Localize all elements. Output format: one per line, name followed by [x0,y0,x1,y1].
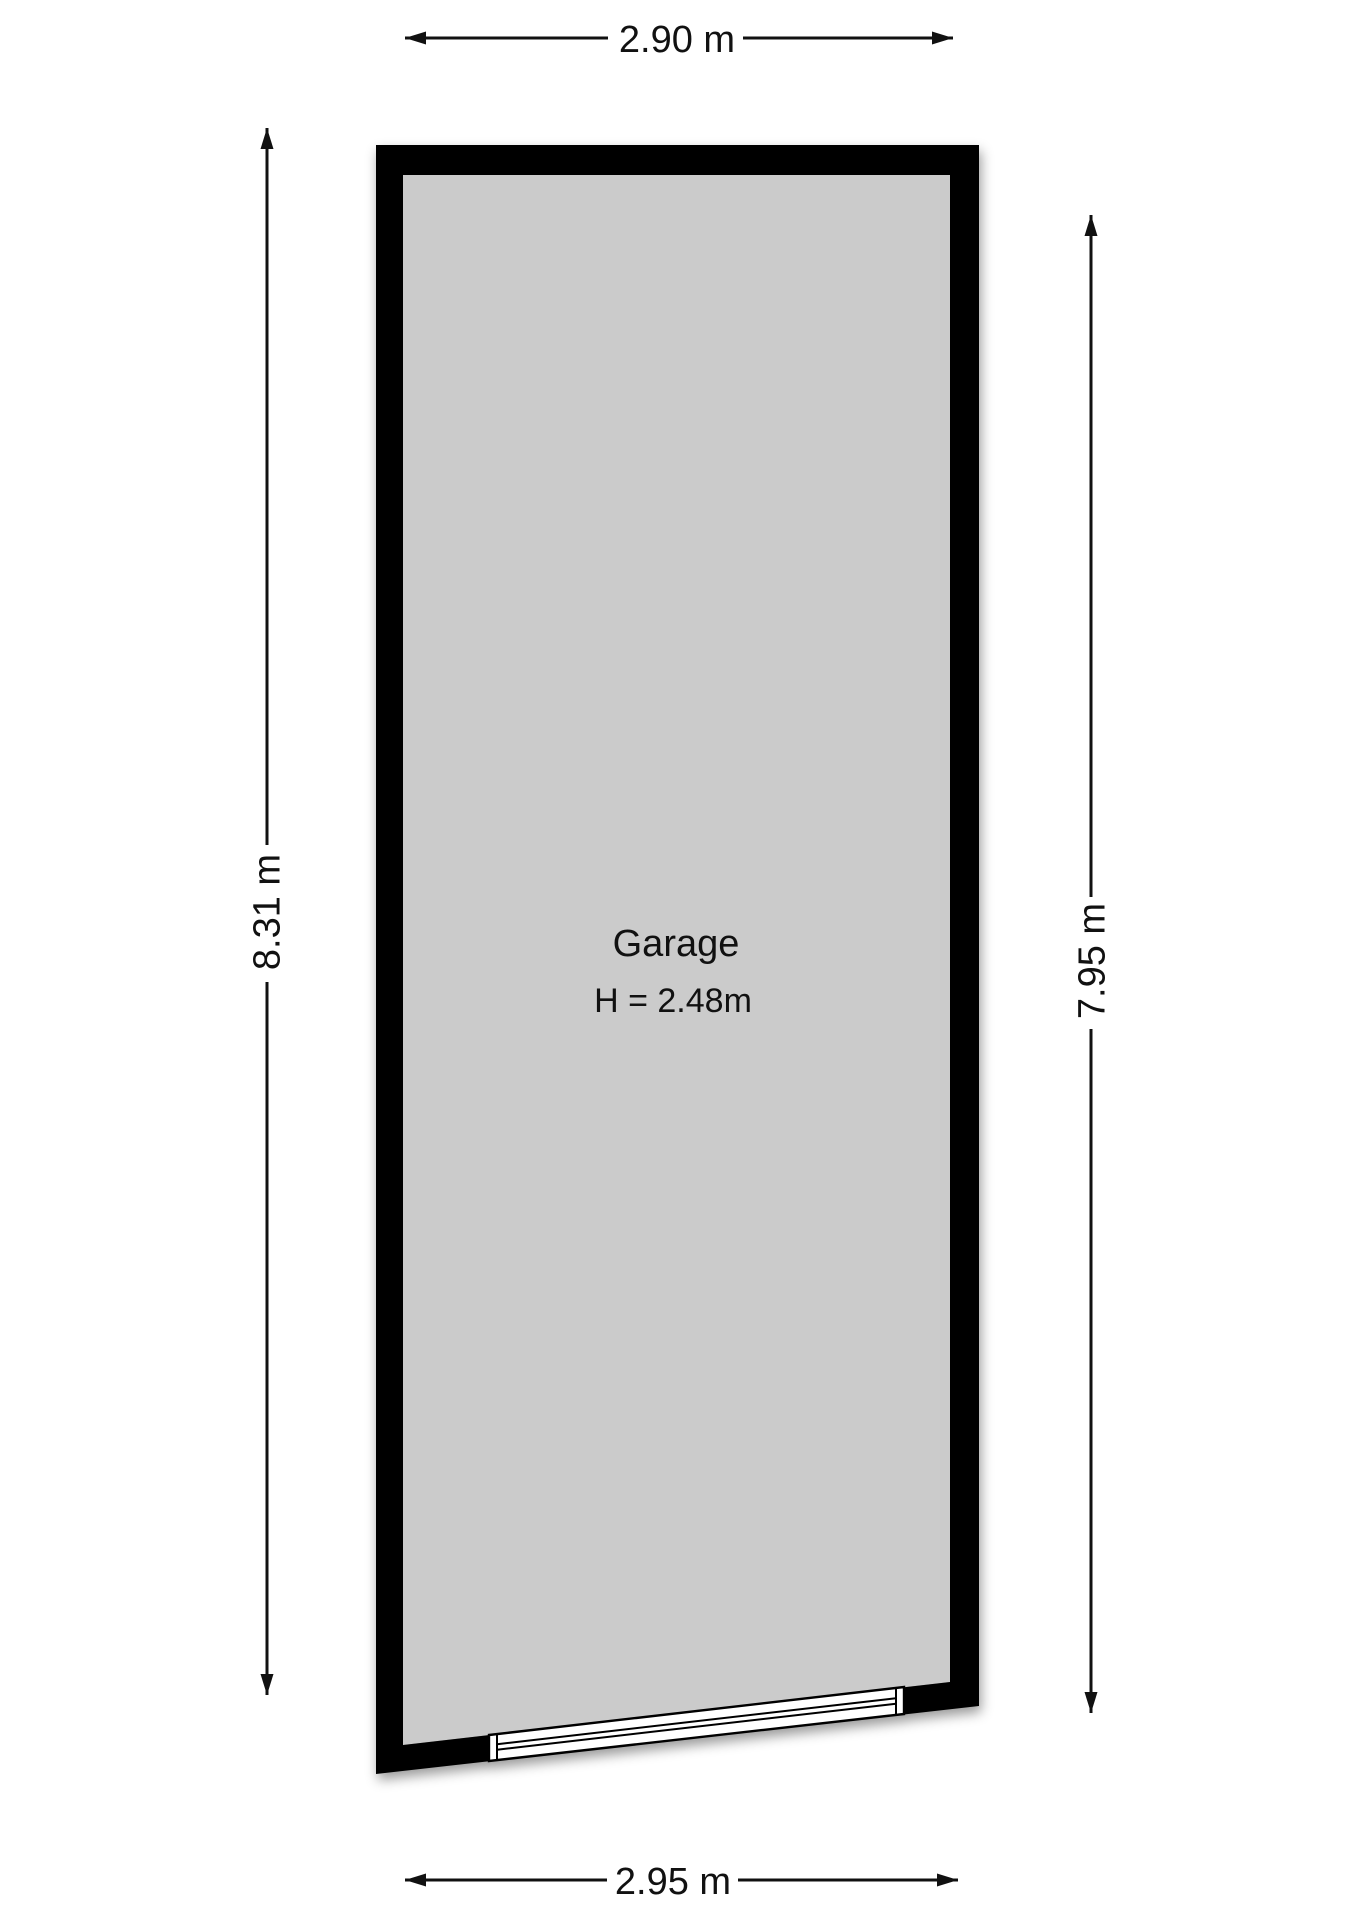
room-ceiling-height-label: H = 2.48m [594,982,752,1020]
floorplan-canvas: Garage H = 2.48m 2.90 m 8.31 m 7.95 m 2.… [0,0,1358,1920]
arrowhead-up-icon [261,128,274,149]
arrowhead-left-icon [405,32,426,45]
arrowhead-up-icon [1085,215,1098,236]
arrowhead-left-icon [405,1874,426,1887]
arrowhead-right-icon [937,1874,958,1887]
dimension-left: 8.31 m [246,128,288,1695]
dimension-left-label: 8.31 m [246,854,288,970]
dimension-bottom: 2.95 m [405,1861,958,1903]
arrowhead-down-icon [1085,1692,1098,1713]
dimension-top: 2.90 m [405,19,953,61]
dimension-bottom-label: 2.95 m [615,1861,731,1903]
arrowhead-right-icon [932,32,953,45]
room-name-label: Garage [613,923,740,965]
dimension-top-label: 2.90 m [619,19,735,61]
dimension-right-label: 7.95 m [1071,903,1113,1019]
dimension-right: 7.95 m [1071,215,1113,1713]
arrowhead-down-icon [261,1674,274,1695]
